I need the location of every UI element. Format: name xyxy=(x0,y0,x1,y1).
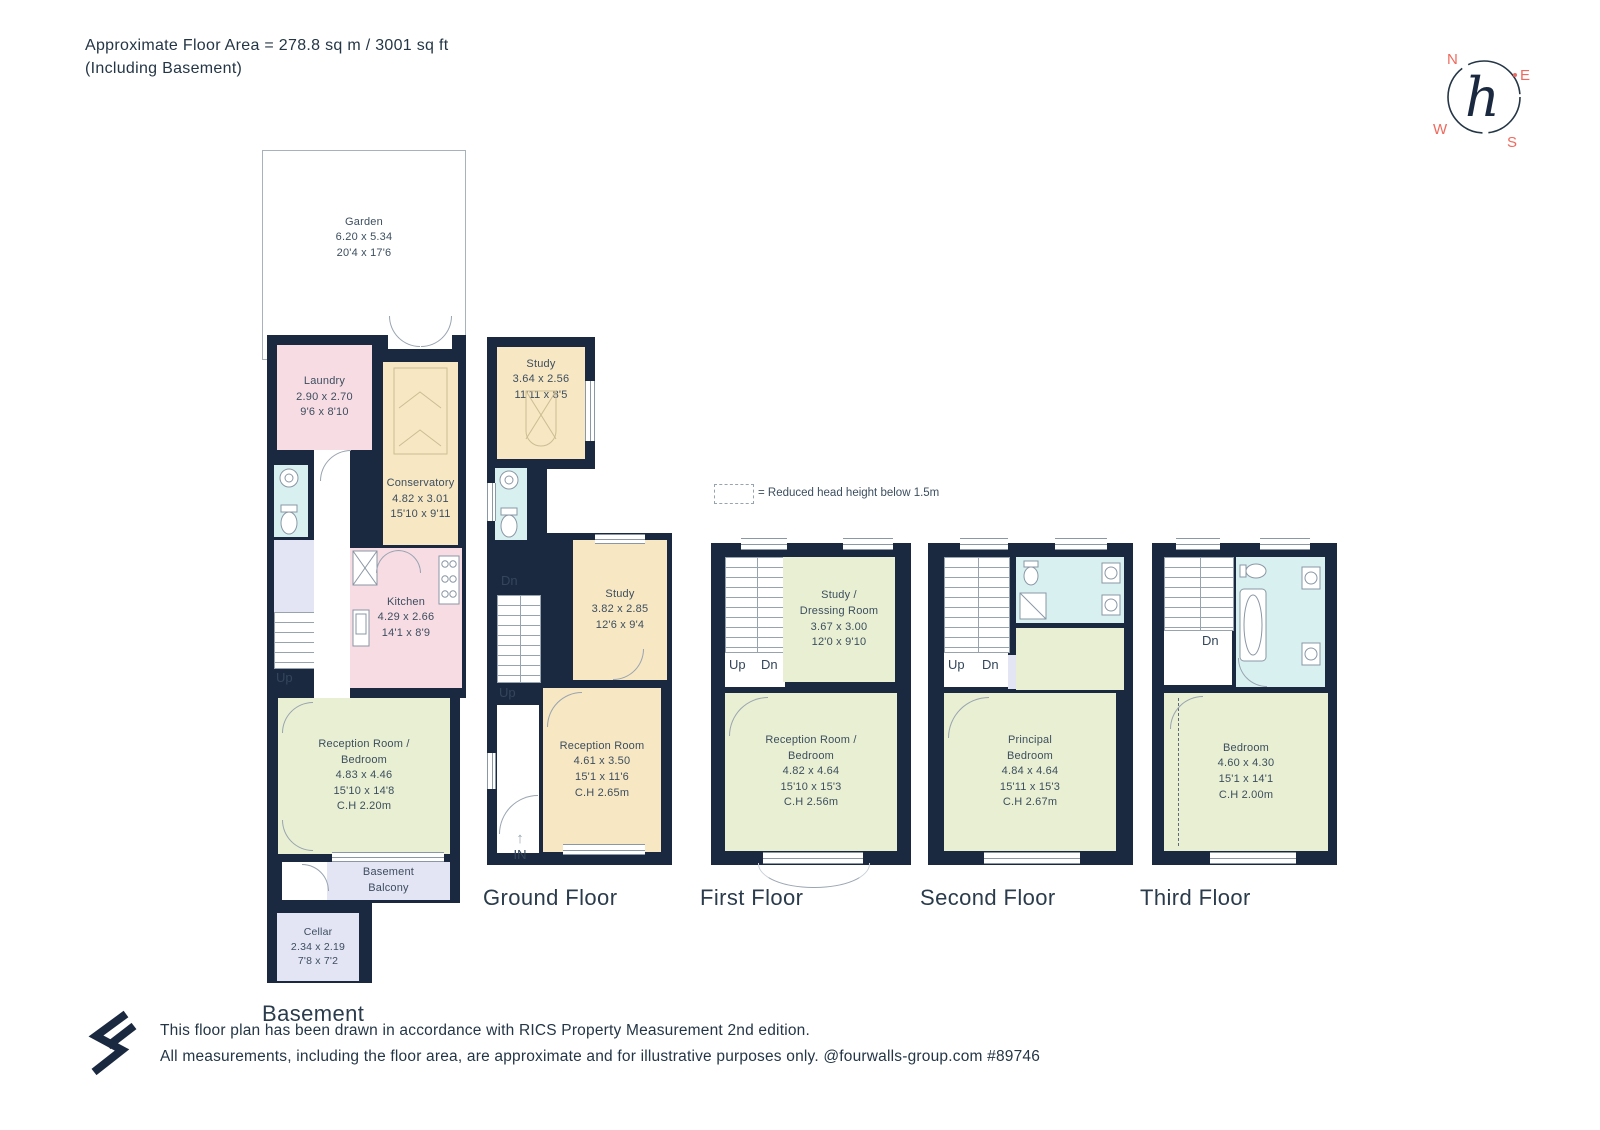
floorplan-page: Approximate Floor Area = 278.8 sq m / 30… xyxy=(0,0,1600,1130)
second-stairs xyxy=(944,557,1010,653)
wc-window xyxy=(487,483,496,521)
room-dim-metric: 3.82 x 2.85 xyxy=(592,602,649,618)
floor-area-line2: (Including Basement) xyxy=(85,57,448,80)
room-dim-metric: 4.84 x 4.64 xyxy=(1002,764,1059,780)
first-window xyxy=(741,538,787,550)
compass-north: N xyxy=(1447,51,1458,68)
room-name: Reception Room / xyxy=(765,733,856,749)
room-dim-imperial: 15'1 x 14'1 xyxy=(1219,772,1274,788)
room-name-2: Bedroom xyxy=(788,749,834,765)
room-dim-metric: 4.83 x 4.46 xyxy=(336,768,393,784)
room-dim-imperial: 7'8 x 7'2 xyxy=(298,954,338,969)
room-dim-imperial: 15'10 x 14'8 xyxy=(333,784,394,800)
reception-window xyxy=(563,844,645,855)
room-dim-metric: 4.61 x 3.50 xyxy=(574,754,631,770)
room-dim-metric: 4.82 x 4.64 xyxy=(783,764,840,780)
room-dim-imperial: 20'4 x 17'6 xyxy=(337,246,392,262)
room-name-2: Bedroom xyxy=(1007,749,1053,765)
ground-rear-study: Study 3.64 x 2.56 11'11 x 8'5 xyxy=(497,347,585,459)
room-dim-metric: 3.67 x 3.00 xyxy=(811,620,868,636)
compass-icon: N E W S h xyxy=(1405,42,1540,157)
study-window xyxy=(585,381,595,441)
study-daybed-icon xyxy=(497,347,585,459)
conservatory-room: Conservatory 4.82 x 3.01 15'10 x 9'11 xyxy=(383,362,458,545)
first-stairs xyxy=(725,557,787,653)
room-name: Garden xyxy=(345,215,383,231)
room-dim-imperial: 15'1 x 11'6 xyxy=(575,770,629,786)
wc-fixtures-icon xyxy=(274,465,308,537)
cellar-room: Cellar 2.34 x 2.19 7'8 x 7'2 xyxy=(277,913,359,981)
stairs-dn-label: Dn xyxy=(1202,633,1219,648)
third-window xyxy=(1176,538,1220,550)
stairs-up-label: Up xyxy=(948,657,965,672)
first-floor-plan: Up Dn Study / Dressing Room 3.67 x 3.00 … xyxy=(703,533,918,868)
floor-area-header: Approximate Floor Area = 278.8 sq m / 30… xyxy=(85,34,448,80)
floor-area-line1: Approximate Floor Area = 278.8 sq m / 30… xyxy=(85,34,448,57)
room-dim-imperial: 15'11 x 15'3 xyxy=(1000,780,1060,796)
bedroom-window xyxy=(984,852,1080,864)
reduced-head-height-swatch xyxy=(714,484,754,504)
basement-walkway xyxy=(314,450,350,698)
room-name: Basement xyxy=(363,865,414,881)
room-ceiling-height: C.H 2.65m xyxy=(575,786,629,802)
bathroom-fixtures-icon xyxy=(1016,557,1124,623)
compass-monogram: h xyxy=(1465,66,1500,129)
compass-east-dot xyxy=(1513,73,1517,77)
room-dim-metric: 6.20 x 5.34 xyxy=(336,230,393,246)
conservatory-decor-icon xyxy=(383,366,458,458)
room-ceiling-height: C.H 2.56m xyxy=(784,795,838,811)
room-dim-metric: 2.34 x 2.19 xyxy=(291,940,345,955)
second-dressing-area xyxy=(1016,628,1124,690)
first-study-dressing-room: Study / Dressing Room 3.67 x 3.00 12'0 x… xyxy=(783,557,895,682)
room-name: Principal xyxy=(1008,733,1052,749)
room-dim-metric: 2.90 x 2.70 xyxy=(296,390,353,406)
laundry-room: Laundry 2.90 x 2.70 9'6 x 8'10 xyxy=(277,345,372,450)
ground-wc xyxy=(495,468,527,540)
second-window xyxy=(960,538,1008,550)
room-dim-imperial: 15'10 x 15'3 xyxy=(780,780,841,796)
third-floor-plan: Dn Bedroom 4.60 x 4.30 15'1 x 14'1 C.H 2… xyxy=(1140,533,1345,868)
study-window xyxy=(595,534,645,544)
basement-plan: Garden 6.20 x 5.34 20'4 x 17'6 Laundry 2… xyxy=(262,150,472,1000)
stairs-up-label: Up xyxy=(729,657,746,672)
third-window xyxy=(1260,538,1310,550)
room-name: Reception Room / xyxy=(318,737,409,753)
room-name: Cellar xyxy=(304,925,333,940)
bedroom-window xyxy=(1210,852,1296,864)
room-name: Study xyxy=(605,587,634,603)
ground-floor-label: Ground Floor xyxy=(483,885,617,911)
room-name: Bedroom xyxy=(1223,741,1269,757)
third-stairs xyxy=(1164,557,1234,631)
entrance-label: IN xyxy=(514,848,527,862)
second-floor-label: Second Floor xyxy=(920,885,1056,911)
stairs-up-label: Up xyxy=(276,670,293,685)
second-window xyxy=(1055,538,1107,550)
entrance-arrow-icon: ↑ xyxy=(516,831,524,848)
room-dim-imperial: 12'0 x 9'10 xyxy=(812,635,867,651)
room-dim-imperial: 12'6 x 9'4 xyxy=(596,618,644,634)
second-bathroom xyxy=(1016,557,1124,623)
ground-stairs xyxy=(497,595,541,683)
room-name: Reception Room xyxy=(560,739,645,755)
stairs-dn-label: Dn xyxy=(761,657,778,672)
room-dim-metric: 4.60 x 4.30 xyxy=(1218,756,1275,772)
room-dim-imperial: 15'10 x 9'11 xyxy=(390,507,450,523)
room-ceiling-height: C.H 2.20m xyxy=(337,799,391,815)
compass-west: W xyxy=(1433,121,1448,138)
third-floor-label: Third Floor xyxy=(1140,885,1251,911)
stairs-dn-label: Dn xyxy=(501,573,518,588)
basement-hall xyxy=(274,540,314,612)
entrance-marker: ↑ IN xyxy=(503,831,537,862)
first-window xyxy=(843,538,893,550)
compass-east: E xyxy=(1520,67,1530,84)
hall-window xyxy=(487,753,496,789)
room-name-2: Balcony xyxy=(368,881,409,897)
room-name: Study / xyxy=(821,588,857,604)
basement-wc xyxy=(274,465,308,537)
wc-fixtures-icon xyxy=(495,468,527,540)
room-name-2: Bedroom xyxy=(341,753,387,769)
fourwalls-logo xyxy=(82,1008,142,1080)
room-ceiling-height: C.H 2.00m xyxy=(1219,788,1273,804)
stairs-dn-label: Dn xyxy=(982,657,999,672)
footer-line1: This floor plan has been drawn in accord… xyxy=(160,1022,810,1040)
reception-window xyxy=(332,852,444,862)
room-ceiling-height: C.H 2.67m xyxy=(1003,795,1057,811)
room-dim-metric: 4.82 x 3.01 xyxy=(392,492,449,508)
basement-stairs xyxy=(274,612,316,669)
ground-floor-plan: Study 3.64 x 2.56 11'11 x 8'5 Dn Up ↑ IN… xyxy=(485,333,675,878)
room-name: Laundry xyxy=(304,374,345,390)
room-dim-imperial: 9'6 x 8'10 xyxy=(300,405,348,421)
basement-balcony: Basement Balcony xyxy=(327,862,450,900)
room-name: Conservatory xyxy=(387,476,455,492)
stairs-up-label: Up xyxy=(499,685,516,700)
compass-south: S xyxy=(1507,134,1517,151)
footer-line2: All measurements, including the floor ar… xyxy=(160,1048,1040,1066)
room-name-2: Dressing Room xyxy=(800,604,878,620)
first-floor-label: First Floor xyxy=(700,885,803,911)
reduced-head-height-label: = Reduced head height below 1.5m xyxy=(758,487,939,499)
second-floor-plan: Up Dn Principal Bedroom 4.84 x 4.64 15'1… xyxy=(920,533,1140,868)
